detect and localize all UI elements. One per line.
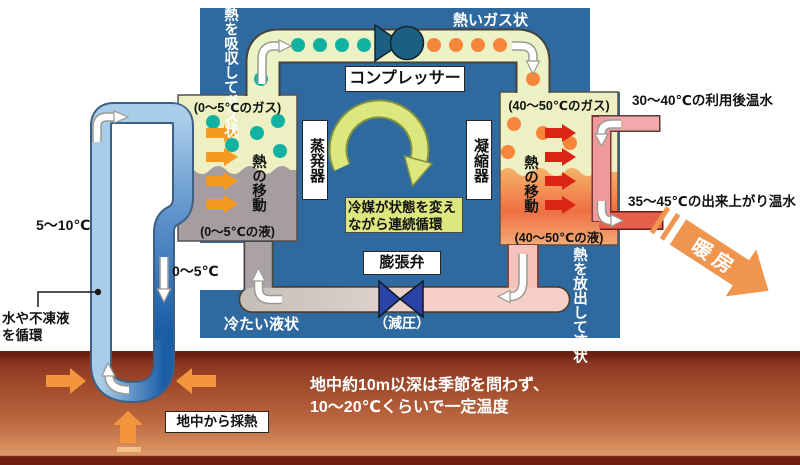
condenser-liquid-label: (40～50℃の液) xyxy=(500,227,618,246)
return-water-label: 30～40℃の利用後温水 xyxy=(632,89,773,109)
flow-arrow-loop-top-icon xyxy=(97,111,128,142)
release-heat-label: 熱を放出して液状 xyxy=(553,247,587,313)
loop-down-temp-label: 0～5℃ xyxy=(172,261,219,281)
heat-collection-label: 地中から採熱 xyxy=(165,411,269,433)
expansion-valve-label: 膨張弁 xyxy=(363,251,441,275)
ground-heat-arrows-icon xyxy=(46,368,216,452)
evaporator-gas-label: (0～5℃のガス) xyxy=(179,97,296,116)
refrigerant-cycle-note: 冷媒が状態を変えながら連続循環 xyxy=(345,197,463,233)
evaporator-label: 蒸発器 xyxy=(302,120,328,200)
absorb-heat-label: 熱を吸収してガス状 xyxy=(204,7,238,87)
circulation-note: 水や不凍液を循環 xyxy=(2,310,82,344)
condenser-heat-transfer-label: 熱の移動 xyxy=(518,147,542,221)
supply-water-label: 35～45℃の出来上がり温水 xyxy=(628,190,796,210)
evaporator-liquid-label: (0～5℃の液) xyxy=(179,221,296,240)
heat-pump-diagram: 熱を吸収してガス状 熱いガス状 コンプレッサー (0～5℃のガス) (0～5℃の… xyxy=(0,0,800,465)
hot-gas-label: 熱いガス状 xyxy=(453,9,528,30)
compressor-icon xyxy=(375,25,424,61)
decompression-label: （減圧） xyxy=(366,313,438,333)
ground-note-line2: 10～20℃くらいで一定温度 xyxy=(310,393,509,417)
evaporator-heat-transfer-label: 熱の移動 xyxy=(246,146,270,220)
condenser-gas-label: (40～50℃のガス) xyxy=(500,95,618,114)
compressor-label: コンプレッサー xyxy=(345,66,465,92)
loop-up-temp-label: 5～10℃ xyxy=(36,215,90,235)
cold-liquid-label: 冷たい液状 xyxy=(224,313,299,334)
ground-note-line1: 地中約10m以深は季節を問わず、 xyxy=(310,371,549,395)
ground-loop-pipe xyxy=(101,113,183,392)
condenser-label: 凝縮器 xyxy=(466,120,492,200)
